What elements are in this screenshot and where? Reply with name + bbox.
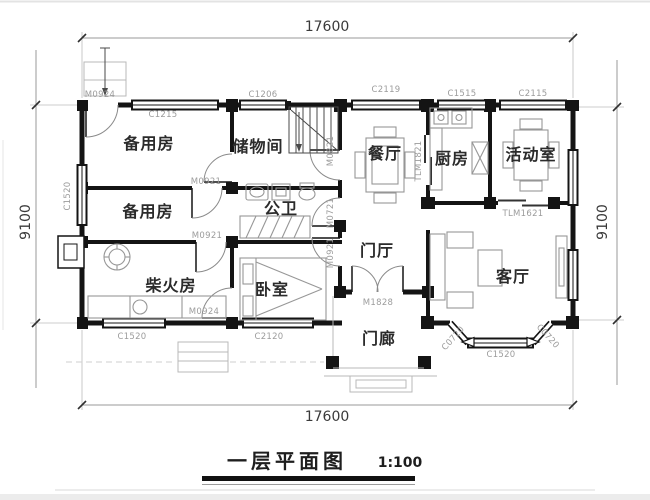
- dim-left: 9100: [18, 204, 34, 240]
- door-window-code-label: C1206: [248, 90, 277, 100]
- door-m1828-entry: [352, 266, 403, 292]
- door-window-code-label: M0721: [326, 198, 336, 228]
- back-entry-stoop: [84, 48, 126, 96]
- door-window-code-label: TLM1821: [414, 141, 424, 183]
- door-window-code-label: C1520: [486, 350, 515, 360]
- window-c2119: [352, 101, 420, 110]
- door-window-code-label: M0921: [192, 231, 222, 241]
- dim-right: 9100: [595, 204, 611, 240]
- window-c1520-left: [78, 165, 87, 225]
- room-label: 门厅: [360, 241, 394, 260]
- title-text: 一层平面图: [227, 449, 347, 473]
- door-m0921-h1: [192, 188, 222, 218]
- chimney: [58, 236, 84, 268]
- floor-plan-drawing: 17600 17600 9100 9100: [0, 0, 650, 500]
- title-scale: 1:100: [378, 455, 423, 471]
- tv-cabinet: [556, 236, 567, 298]
- door-window-code-label: C1515: [447, 89, 476, 99]
- window-c1520-bottom: [103, 319, 165, 328]
- side-steps: [178, 342, 228, 372]
- door-window-code-label: C2120: [254, 332, 283, 342]
- door-window-code-label: M0921: [326, 238, 336, 268]
- room-label: 活动室: [505, 145, 556, 164]
- window-right-upper: [569, 150, 578, 205]
- door-window-code-label: C1520: [117, 332, 146, 342]
- door-m0921-h3: [196, 242, 226, 272]
- room-label: 公卫: [264, 199, 298, 218]
- window-c2115: [500, 101, 566, 110]
- room-label: 门廊: [362, 329, 396, 348]
- room-label: 备用房: [121, 202, 173, 221]
- room-label: 卧室: [255, 280, 289, 299]
- dim-bottom: 17600: [305, 409, 350, 425]
- drawing-title: 一层平面图 1:100: [55, 449, 595, 490]
- door-window-code-label: TLM1621: [502, 209, 544, 219]
- dining-table: [355, 127, 415, 203]
- door-window-code-label: M0921: [191, 177, 221, 187]
- door-m0924-top: [86, 105, 118, 137]
- door-window-code-label: C1215: [148, 110, 177, 120]
- window-right-lower: [569, 250, 578, 300]
- title-underline: [202, 476, 415, 481]
- door-window-code-label: M1828: [363, 298, 393, 308]
- window-c1215: [132, 101, 218, 110]
- door-window-code-label: C2119: [371, 85, 400, 95]
- window-c1206: [240, 101, 286, 110]
- door-window-code-label: C2115: [518, 89, 547, 99]
- door-window-code-label: M0924: [85, 90, 115, 100]
- sliding-door-tlm1621: [498, 201, 548, 206]
- stair-direction-arrow-icon: [296, 144, 302, 152]
- room-label: 备用房: [122, 134, 174, 153]
- page-edges: [0, 2, 650, 500]
- door-window-code-label: M0924: [189, 307, 219, 317]
- dim-top: 17600: [305, 19, 350, 35]
- room-label: 厨房: [435, 149, 469, 168]
- room-label: 储物间: [231, 137, 283, 156]
- floor-plan-page: 17600 17600 9100 9100: [0, 0, 650, 500]
- door-window-code-label: C1520: [63, 181, 73, 210]
- room-label: 客厅: [496, 267, 530, 286]
- door-window-code-label: M0821: [326, 136, 336, 166]
- room-label: 柴火房: [144, 276, 196, 295]
- room-label: 餐厅: [367, 144, 402, 163]
